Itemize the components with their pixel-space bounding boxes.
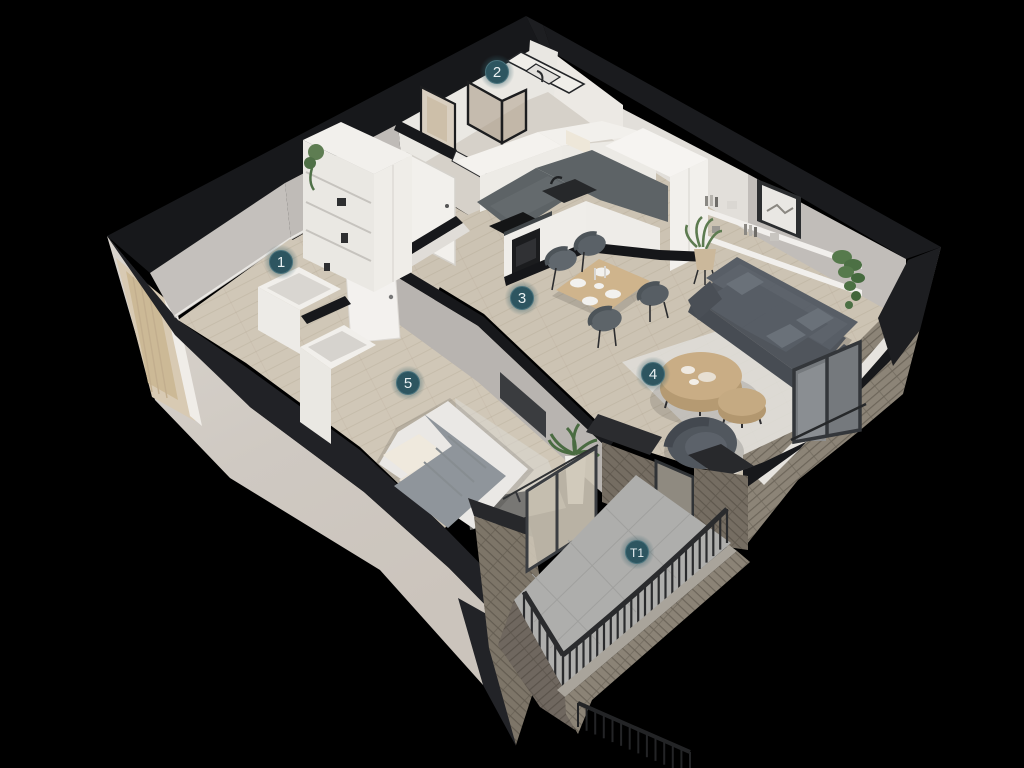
svg-text:T1: T1	[630, 546, 644, 560]
svg-text:2: 2	[493, 64, 501, 81]
svg-text:5: 5	[404, 375, 412, 392]
svg-text:3: 3	[518, 290, 526, 307]
svg-text:4: 4	[649, 366, 657, 383]
svg-text:1: 1	[277, 254, 285, 271]
